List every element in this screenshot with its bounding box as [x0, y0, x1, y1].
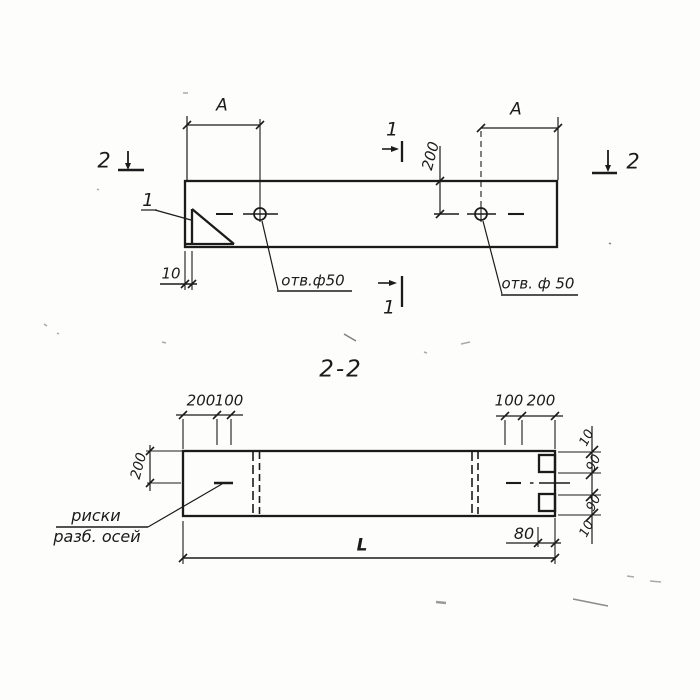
- hole-label-left: отв.ф50: [281, 274, 344, 289]
- engineering-drawing-canvas: A A 200 2 2 1 1 1 10 отв.ф50 отв. ф 50 2…: [0, 0, 700, 700]
- dim-label-10-plan: 10: [161, 267, 180, 282]
- top-view-beam-outline: [185, 181, 557, 247]
- detail-1-leader: [141, 210, 191, 220]
- dim-label-100-top-left: 100: [215, 394, 244, 409]
- dim-label-100-top-right: 100: [495, 394, 524, 409]
- section-mark-1-top: [382, 141, 402, 162]
- dim-200-left-section: [146, 445, 182, 491]
- dim-top-right-section: [496, 412, 563, 449]
- section-beam-outline: [183, 451, 555, 516]
- dim-top-left-section: [176, 411, 243, 449]
- hole-left: [216, 119, 278, 222]
- dim-a-left: [183, 116, 264, 180]
- axes-note-line2: разб. осей: [53, 529, 140, 545]
- section-mark-2-right: [592, 150, 617, 173]
- dim-label-200-top-right: 200: [527, 394, 556, 409]
- dim-label-a-right: A: [510, 102, 522, 119]
- section-view-title: 2-2: [319, 359, 363, 382]
- dim-label-80: 80: [514, 526, 534, 542]
- dim-length-section: [179, 518, 559, 564]
- dim-a-right: [477, 117, 562, 180]
- section-mark-2-left: [118, 151, 144, 170]
- dim-label-length: L: [357, 538, 368, 555]
- section-label-1-bottom: 1: [383, 299, 395, 318]
- hole-right: [434, 131, 524, 222]
- section-label-1-top: 1: [386, 121, 398, 140]
- section-label-2-left: 2: [97, 151, 110, 172]
- dim-label-a-left: A: [216, 98, 228, 115]
- section-label-2-right: 2: [626, 152, 639, 173]
- detail-ref-label-1: 1: [142, 192, 153, 210]
- dim-label-200-top-left: 200: [187, 394, 216, 409]
- axes-note-line1: риски: [71, 508, 120, 524]
- section-hidden-joint-lines: [253, 452, 478, 515]
- hole-label-right: отв. ф 50: [502, 277, 575, 292]
- drawing-linework: [0, 0, 700, 700]
